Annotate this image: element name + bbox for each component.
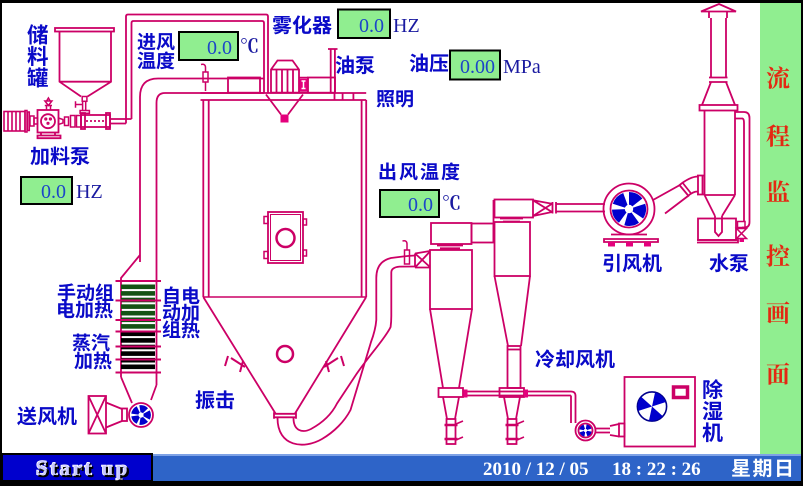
- svg-text:0.0: 0.0: [359, 15, 384, 37]
- svg-text:2010 / 12 / 05: 2010 / 12 / 05: [483, 459, 589, 480]
- svg-text:0.0: 0.0: [408, 194, 433, 216]
- svg-text:0.0: 0.0: [41, 181, 66, 203]
- svg-text:HZ: HZ: [393, 15, 420, 37]
- svg-text:0.0: 0.0: [207, 37, 232, 59]
- svg-text:HZ: HZ: [76, 181, 103, 203]
- svg-text:0.00: 0.00: [460, 56, 495, 78]
- svg-text:MPa: MPa: [503, 56, 541, 78]
- svg-text:18 : 22 : 26: 18 : 22 : 26: [612, 459, 701, 480]
- svg-text:Start up: Start up: [36, 456, 130, 480]
